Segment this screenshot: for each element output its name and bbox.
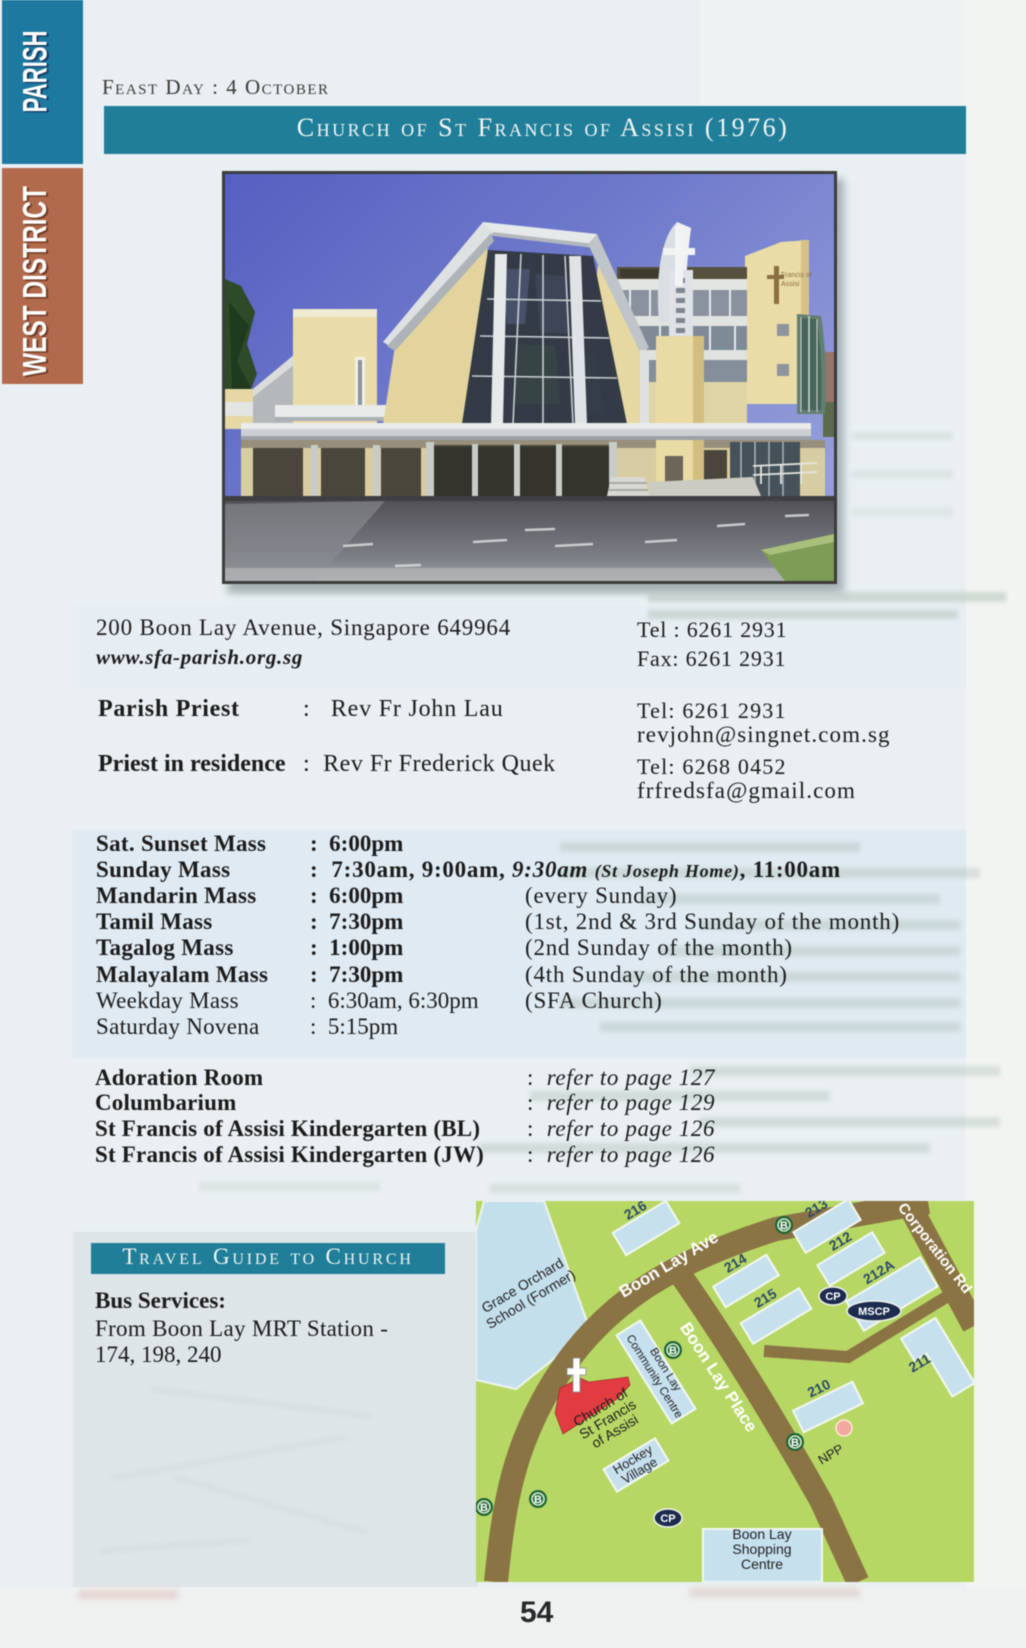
svg-text:B: B: [669, 1345, 677, 1357]
svg-text:B: B: [780, 1220, 788, 1232]
svg-text:CP: CP: [660, 1513, 675, 1525]
svg-text:B: B: [480, 1502, 488, 1514]
svg-text:B: B: [791, 1437, 799, 1449]
svg-text:MSCP: MSCP: [858, 1306, 890, 1318]
svg-text:B: B: [534, 1494, 542, 1506]
svg-text:Assisi: Assisi: [781, 281, 800, 288]
svg-text:Centre: Centre: [741, 1556, 783, 1572]
svg-text:CP: CP: [825, 1291, 840, 1303]
svg-text:Francis of: Francis of: [781, 272, 812, 279]
svg-text:Shopping: Shopping: [732, 1541, 791, 1557]
svg-text:Boon Lay: Boon Lay: [732, 1526, 791, 1542]
